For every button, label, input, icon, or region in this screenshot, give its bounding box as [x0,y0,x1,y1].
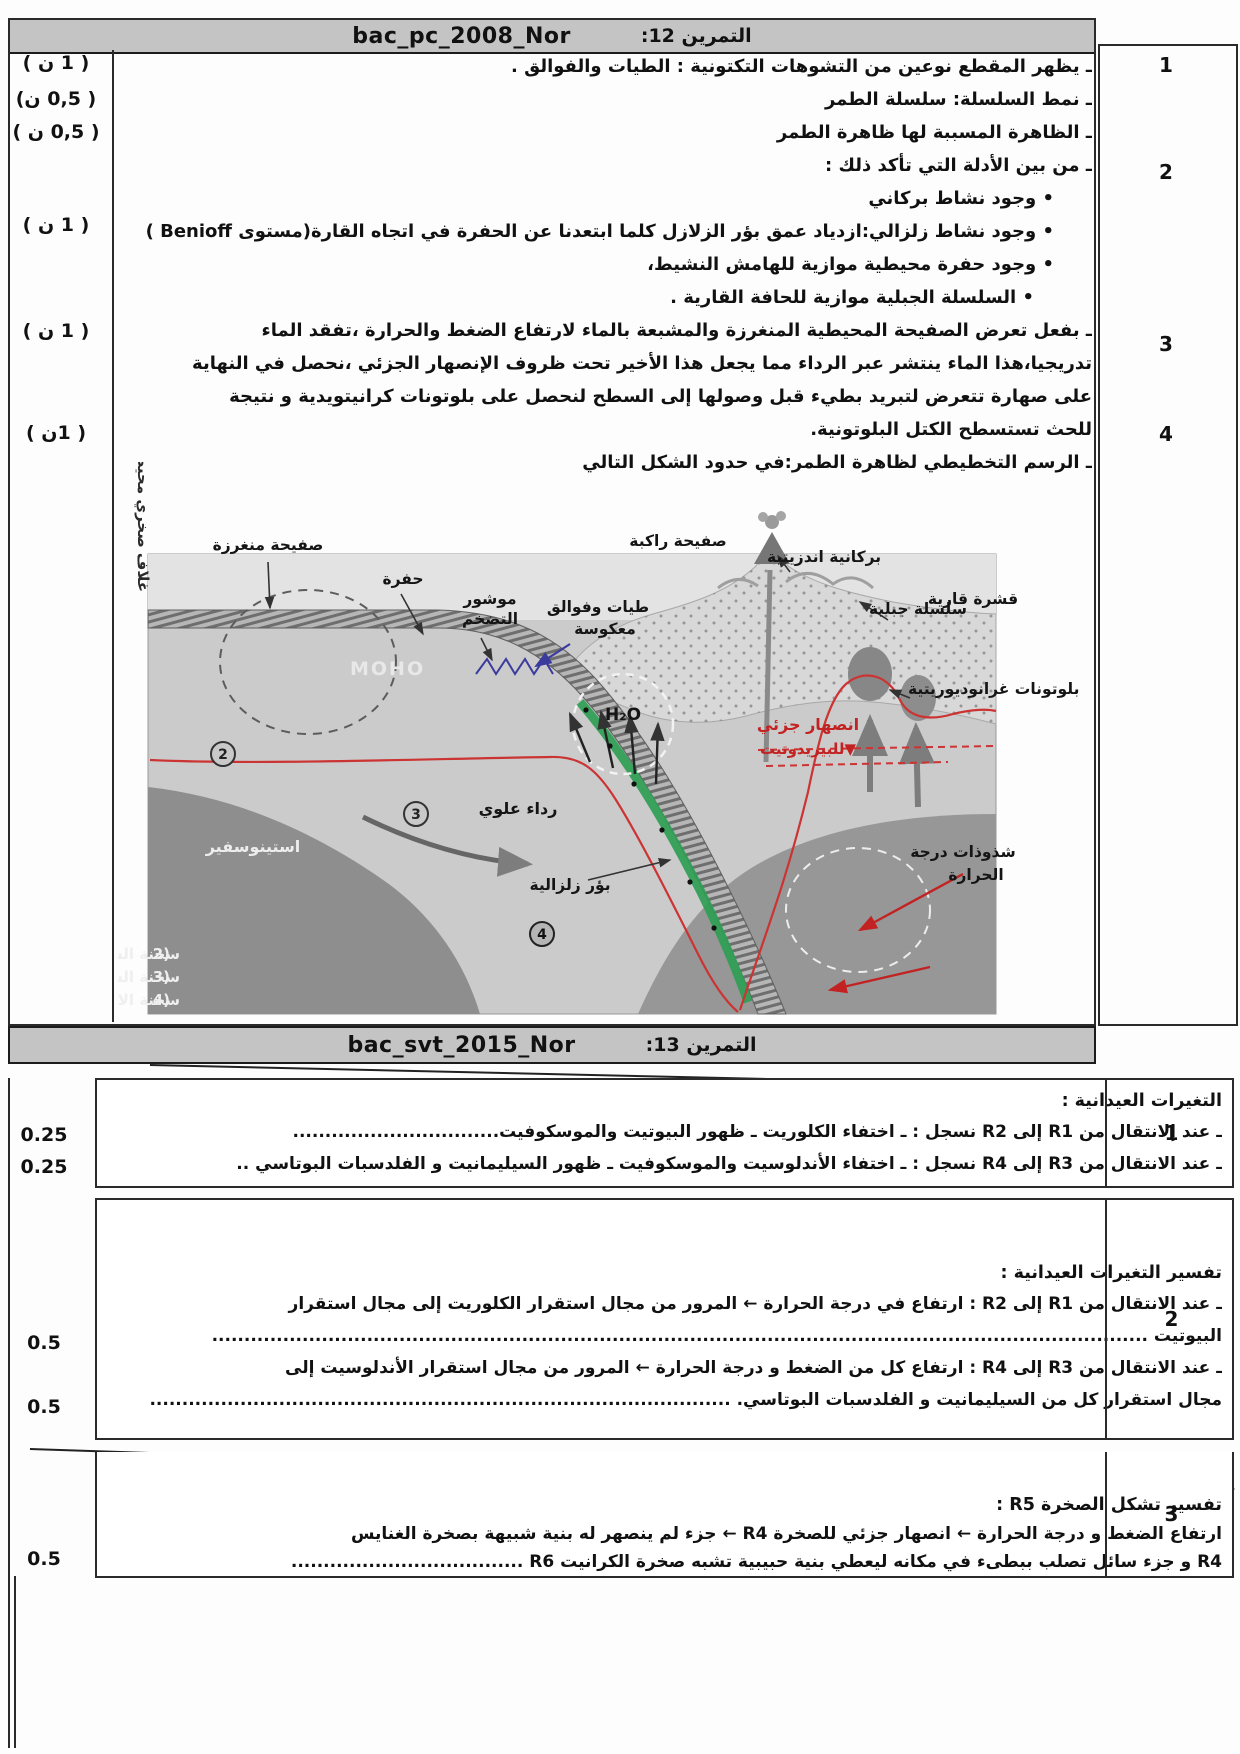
row-line: R4 و جزء سائل تصلب ببطىء في مكانه ليعطي … [117,1548,1222,1576]
mark-value: ( 0,5 ن) [6,88,106,110]
row-line: البيوتيت ...............................… [117,1320,1222,1352]
question-number: 2 [1098,160,1234,184]
exercise12-marks-divider [112,50,114,1022]
exercise13-code: bac_svt_2015_Nor [347,1033,575,1058]
legend-label: سحنة الشيست الأخضر [118,945,180,963]
question-number: 3 [1098,332,1234,356]
answer-paragraph-line: على صهارة تتعرض لتبريد بطيء قبل وصولها إ… [120,380,1092,413]
label-overriding-plate: صفيحة راكبة [629,532,726,550]
label-folds-faults: طيات وفوالق [547,598,649,616]
row-line: ـ عند الانتقال من R3 إلى R4 : ارتفاع كل … [117,1352,1222,1384]
answer-row-1: التغيرات العيدانية : ـ عند إلانتقال من R… [95,1078,1234,1188]
label-h2o: H₂O [605,705,641,725]
mark-value: ( 0,5 ن ) [6,121,106,143]
exercise12-answer-text: ـ يظهر المقطع نوعين من التشوهات التكتوني… [120,50,1092,479]
label-accretion-prism: التضخم [462,610,518,628]
mark-value: 0.5 [0,1548,88,1570]
scanned-exam-page: bac_pc_2008_Nor التمرين 12: ( 1 ن ) ( 0,… [0,0,1240,1754]
label-temperature-anomaly: الحرارة [948,866,1003,884]
question-number: 3 [1105,1452,1236,1576]
label-temperature-anomaly: شذوذات درجة [910,843,1016,861]
row1-content: التغيرات العيدانية : ـ عند إلانتقال من R… [117,1080,1222,1180]
label-folds-faults: معكوسة [574,620,636,638]
label-continental-crust: قشرة قارية [928,590,1018,608]
row-line: ـ عند الانتقال من R1 إلى R2 : ارتفاع في … [117,1288,1222,1320]
question-number: 1 [1098,53,1234,77]
question-number: 2 [1105,1200,1236,1438]
answer-line: ـ الظاهرة المسببة لها ظاهرة الطمر [120,116,1092,149]
label-granodiorite-plutons: بلوتونات غرانوديوريتية [908,680,1079,698]
row-line: ارتفاع الضغط و درجة الحرارة ← انصهار جزئ… [117,1520,1222,1548]
subduction-diagram: 2 3 4 صفيحة منغرزة حفرة موشور التضخم طيا… [118,462,1094,1018]
label-upper-mantle: رداء علوي [479,799,558,819]
label-peridotite: ▼للبيريدوتيت [760,740,857,758]
mark-value: 0.25 [0,1156,88,1178]
answer-paragraph-line: تدريجيا،هذا الماء ينتشر عبر الرداء مما ي… [120,347,1092,380]
answer-bullet: • وجود نشاط زلزالي:ازدياد عمق بؤر الزلاز… [120,215,1054,248]
mark-value: 0.25 [0,1124,88,1146]
mark-value: ( 1ن ) [6,422,106,444]
question-number: 1 [1105,1080,1236,1186]
answer-bullet: • وجود حفرة محيطية موازية للهامش النشيط، [120,248,1054,281]
mark-value: ( 1 ن ) [6,214,106,236]
row-title: تفسير التغيرات العيدانية : [117,1258,1222,1288]
row-line: مجال استقرار كل من السيليمانيت و الفلدسب… [117,1384,1222,1416]
circled-number-2: 2 [211,742,235,766]
label-seismic-foci: بؤر زلزالية [529,876,610,894]
answer-row-2: تفسير التغيرات العيدانية : ـ عند الانتقا… [95,1198,1234,1440]
mark-value: ( 1 ن ) [6,320,106,342]
mark-value: ( 1 ن ) [6,52,106,74]
diagram-legend: 2) سحنة الشيست الأخضر 3) سحنة الشيست الا… [118,945,180,1009]
row-line: ـ عند الانتقال من R3 إلى R4 نسجل : ـ اخت… [117,1148,1222,1180]
label-andesitic-volcanism: بركانية اندزيتية [767,548,881,566]
row-title: التغيرات العيدانية : [117,1086,1222,1116]
magma-ascent-arrow [916,728,918,807]
label-partial-melting: انصهار جزئي [757,715,859,735]
svg-text:4: 4 [537,927,547,943]
answer-paragraph-line: للحث تستسطح الكتل البلوتونية. [120,413,1092,446]
exercise13-header: bac_svt_2015_Nor التمرين 13: [8,1026,1096,1064]
row3-content: تفسير تشكل الصخرة R5 : ارتفاع الضغط و در… [117,1452,1222,1576]
legend-label: سحنة الشيست الازرق [118,968,180,986]
mark-value: 0.5 [0,1396,88,1418]
answer-row-3: تفسير تشكل الصخرة R5 : ارتفاع الضغط و در… [95,1452,1234,1578]
answer-bullet: • السلسلة الجبلية موازية للحافة القارية … [120,281,1034,314]
label-asthenosphere: استينوسفير [205,837,301,856]
row-title: تفسير تشكل الصخرة R5 : [117,1490,1222,1520]
answer-line: ـ من بين الأدلة التي تأكد ذلك : [120,149,1092,182]
label-trench: حفرة [382,570,423,588]
label-oceanic-lithosphere: غلاف صخري محيطي [133,462,152,592]
label-accretion-prism: موشور [462,590,516,608]
eruption-cloud [758,512,768,522]
mark-value: 0.5 [0,1332,88,1354]
answer-line: ـ نمط السلسلة: سلسلة الطمر [120,83,1092,116]
left-border-line [14,1576,16,1748]
row-line: ـ عند إلانتقال من R1 إلى R2 نسجل : ـ اخت… [117,1116,1222,1148]
answer-bullet: • وجود نشاط بركاني [120,182,1054,215]
circled-number-4: 4 [530,922,554,946]
circled-number-3: 3 [404,802,428,826]
svg-text:3: 3 [411,807,421,823]
answer-paragraph-line: ـ بفعل تعرض الصفيحة المحيطية المنغرزة وا… [120,314,1092,347]
exercise13-title: التمرين 13: [646,1034,757,1056]
pluton [848,647,892,701]
label-subducting-plate: صفيحة منغرزة [213,536,324,554]
exercise12-number-column [1098,44,1238,1026]
row2-content: تفسير التغيرات العيدانية : ـ عند الانتقا… [117,1200,1222,1416]
left-border-line [8,1078,10,1748]
label-moho: MOHO [350,658,425,680]
answer-line: ـ يظهر المقطع نوعين من التشوهات التكتوني… [120,50,1092,83]
svg-text:2: 2 [218,747,228,763]
legend-label: سحنة الاكلوجيت [118,991,180,1009]
question-number: 4 [1098,422,1234,446]
eruption-cloud [776,511,786,521]
